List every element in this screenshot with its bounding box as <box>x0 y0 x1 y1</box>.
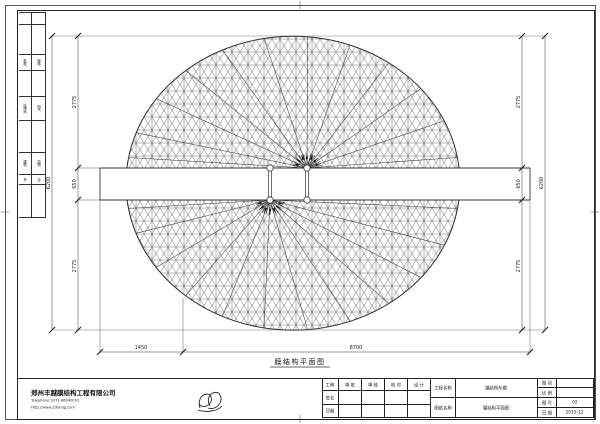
dim-label: 2775 <box>72 260 78 273</box>
dim-label: 6200 <box>539 177 545 190</box>
info-table: 图 别 比 例 图 号 02 日 期 2015-12 <box>537 378 593 418</box>
plan-drawing: 6200 2775 650 2775 2775 650 2775 6200 14… <box>0 0 600 424</box>
sig-row-label: 签名 <box>323 391 339 404</box>
info-value: 2015-12 <box>557 408 594 418</box>
company-logo <box>190 384 226 414</box>
info-label: 比 例 <box>538 388 557 398</box>
sig-empty-cell <box>362 391 385 404</box>
dim-label: 2775 <box>516 260 522 273</box>
dim-label: 6200 <box>46 177 52 190</box>
info-value <box>557 388 594 398</box>
company-cell: 郑州丰越膜结构工程有限公司 Telephone:0371-66040001 Ht… <box>19 380 189 417</box>
signature-table: 工种 审 定 审 核 校 对 设 计 签名 日期 <box>322 378 430 418</box>
sig-empty-cell <box>339 405 362 418</box>
project-name-label: 工程名称 <box>431 378 456 398</box>
sheet-name-label: 图纸名称 <box>431 398 456 418</box>
info-label: 图 别 <box>538 378 557 388</box>
dim-label: 2775 <box>72 96 78 109</box>
dim-label: 650 <box>516 179 522 189</box>
project-name-value: 膜结构车棚 <box>456 378 538 398</box>
sig-header-cell: 审 定 <box>339 378 362 391</box>
drawing-sheet: 批准审核给排水电气建筑结构专业 6200 2775 650 2775 2775 … <box>0 0 600 424</box>
info-label: 图 号 <box>538 398 557 408</box>
sig-header-cell: 校 对 <box>385 378 408 391</box>
info-value: 02 <box>557 398 594 408</box>
sig-empty-cell <box>385 391 408 404</box>
sig-header-cell: 审 核 <box>362 378 385 391</box>
company-telephone: Telephone:0371-66040001 <box>31 398 126 402</box>
sig-header-cell: 设 计 <box>408 378 431 391</box>
sheet-name-value: 膜结构平面图 <box>456 398 538 418</box>
drawing-caption: 膜结构平面图 <box>275 357 326 366</box>
dim-label: 1450 <box>135 345 148 351</box>
dim-label: 650 <box>72 179 78 189</box>
info-value <box>557 378 594 388</box>
sig-empty-cell <box>408 405 431 418</box>
sig-empty-cell <box>339 391 362 404</box>
sig-empty-cell <box>362 405 385 418</box>
company-name: 郑州丰越膜结构工程有限公司 <box>31 387 189 397</box>
info-label: 日 期 <box>538 408 557 418</box>
sig-empty-cell <box>385 405 408 418</box>
dim-label: 8700 <box>350 345 363 351</box>
name-table: 工程名称 膜结构车棚 图纸名称 膜结构平面图 <box>430 378 537 418</box>
sig-header-cell: 工种 <box>323 378 339 391</box>
sig-empty-cell <box>408 391 431 404</box>
sig-row-label: 日期 <box>323 405 339 418</box>
lower-truss-shell <box>127 200 459 330</box>
dim-label: 2775 <box>516 96 522 109</box>
company-website: Http://www.zzfymjg.com <box>31 405 126 409</box>
